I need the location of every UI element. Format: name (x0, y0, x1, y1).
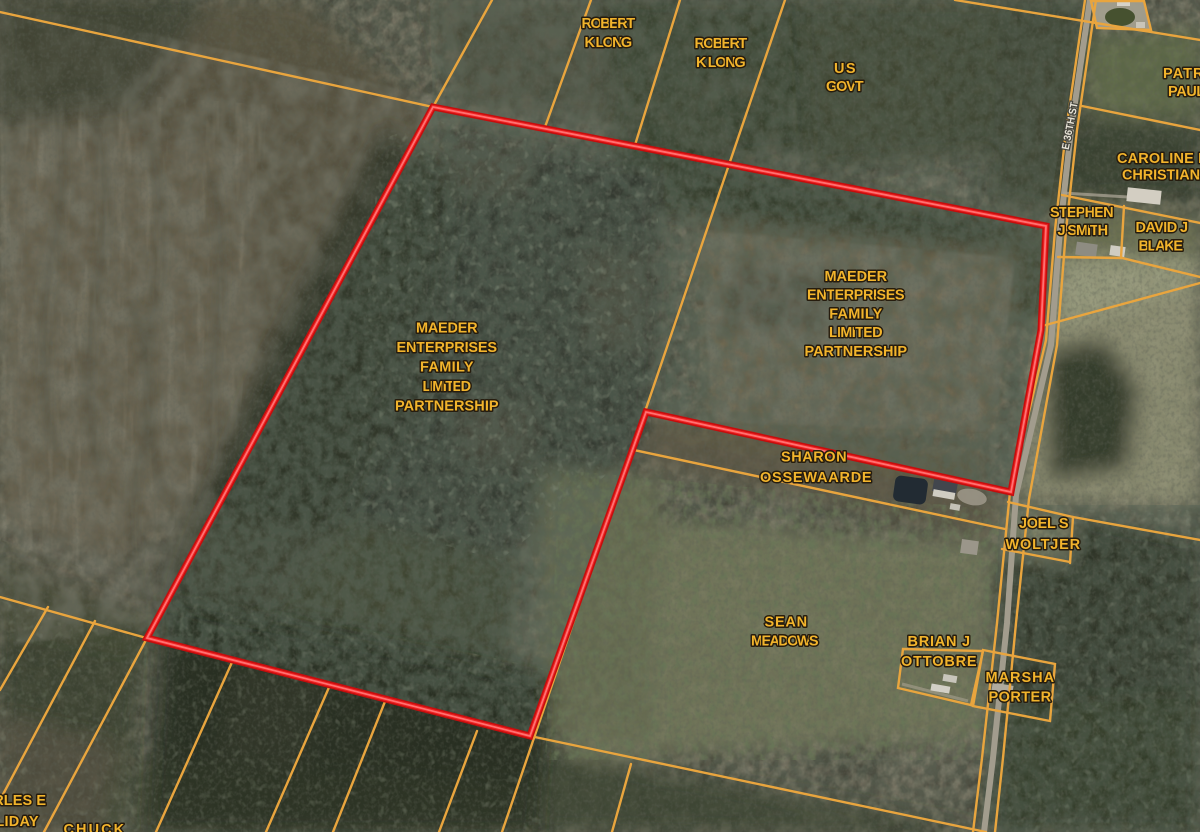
svg-text:MAEDER: MAEDER (825, 269, 888, 285)
svg-text:MAEDER: MAEDER (416, 320, 478, 336)
svg-text:LIMITED: LIMITED (829, 325, 883, 341)
svg-text:CHUCK: CHUCK (64, 822, 125, 832)
svg-text:MARSHA: MARSHA (986, 670, 1055, 686)
svg-text:BLAKE: BLAKE (1139, 238, 1184, 254)
svg-text:K LONG: K LONG (696, 55, 746, 71)
svg-text:WOLTJER: WOLTJER (1006, 537, 1081, 553)
svg-text:OTTOBRE: OTTOBRE (901, 654, 977, 670)
svg-text:LIMITED: LIMITED (423, 379, 472, 395)
svg-text:CHARLES E: CHARLES E (0, 793, 47, 809)
svg-text:SHARON: SHARON (781, 449, 847, 465)
svg-text:JOEL S: JOEL S (1019, 516, 1069, 532)
svg-text:PARTNERSHIP: PARTNERSHIP (805, 344, 908, 360)
svg-text:BRIAN J: BRIAN J (908, 634, 971, 650)
svg-text:ENTERPRISES: ENTERPRISES (397, 340, 498, 356)
svg-text:CHRISTIANS: CHRISTIANS (1122, 167, 1200, 183)
svg-text:PAULSON: PAULSON (1168, 84, 1200, 100)
svg-text:STEPHEN: STEPHEN (1050, 205, 1114, 221)
svg-text:MEADOWS: MEADOWS (751, 634, 819, 650)
svg-text:FAMILY: FAMILY (420, 359, 474, 375)
svg-text:J SMITH: J SMITH (1058, 223, 1109, 239)
svg-text:SEAN: SEAN (765, 614, 808, 630)
svg-text:U S: U S (834, 61, 856, 77)
svg-text:GOVT: GOVT (826, 79, 864, 95)
svg-text:FAMILY: FAMILY (829, 306, 883, 322)
svg-text:HOLIDAY: HOLIDAY (0, 814, 39, 830)
svg-text:PARTNERSHIP: PARTNERSHIP (395, 398, 499, 414)
svg-text:PORTER: PORTER (989, 689, 1052, 705)
svg-text:K LONG: K LONG (585, 35, 633, 51)
svg-text:OSSEWAARDE: OSSEWAARDE (760, 470, 872, 486)
svg-text:ENTERPRISES: ENTERPRISES (807, 288, 905, 304)
svg-text:ROBERT: ROBERT (582, 16, 636, 32)
svg-text:PATRICIA: PATRICIA (1163, 66, 1200, 82)
svg-text:CAROLINE N: CAROLINE N (1117, 151, 1200, 167)
svg-text:ROBERT: ROBERT (695, 36, 748, 52)
svg-text:DAVID J: DAVID J (1136, 220, 1189, 236)
